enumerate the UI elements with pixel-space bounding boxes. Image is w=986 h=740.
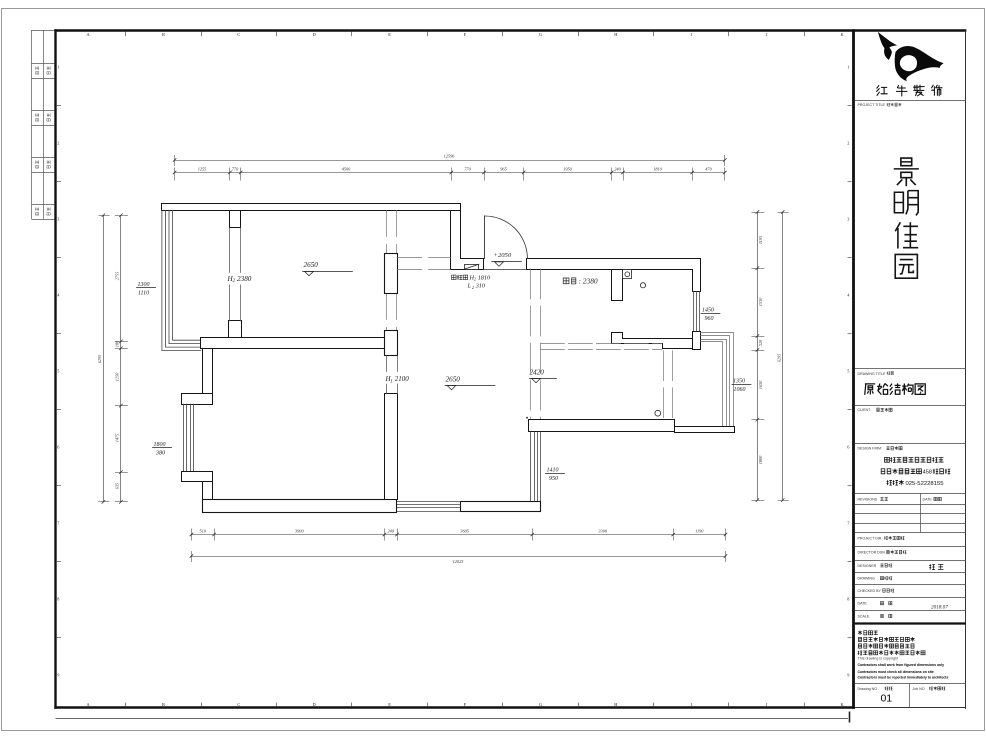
- svg-text:8: 8: [57, 597, 59, 602]
- svg-text:1195: 1195: [758, 235, 763, 244]
- svg-text:G: G: [539, 32, 542, 37]
- svg-text:1410: 1410: [547, 467, 559, 474]
- svg-text:6295: 6295: [97, 354, 102, 363]
- svg-text:6295: 6295: [776, 353, 781, 362]
- svg-text:240: 240: [387, 529, 394, 534]
- svg-text:770: 770: [464, 167, 471, 172]
- svg-text:H: H: [614, 32, 617, 37]
- svg-text:D: D: [313, 702, 316, 707]
- svg-text:3900: 3900: [295, 529, 304, 534]
- svg-text:CLIENT: CLIENT: [858, 408, 872, 412]
- svg-text:8: 8: [847, 597, 849, 602]
- svg-text:Contractors shall work from fi: Contractors shall work from figured dime…: [858, 663, 945, 667]
- svg-text:B: B: [162, 32, 165, 37]
- svg-text:2018.07: 2018.07: [931, 605, 948, 611]
- svg-text:DATE: DATE: [923, 497, 933, 501]
- svg-text:1950: 1950: [563, 167, 572, 172]
- svg-text:1250: 1250: [115, 372, 120, 381]
- svg-text:5: 5: [847, 369, 849, 374]
- svg-text:1060: 1060: [734, 387, 746, 393]
- svg-text:B: B: [162, 702, 165, 707]
- svg-text:1110: 1110: [138, 290, 149, 296]
- svg-text:510: 510: [199, 529, 206, 534]
- svg-text:470: 470: [705, 167, 712, 172]
- svg-text:Drawing NO: Drawing NO: [858, 687, 878, 691]
- svg-text:D: D: [313, 32, 316, 37]
- svg-text:C: C: [237, 32, 240, 37]
- svg-text:960: 960: [705, 316, 714, 322]
- svg-text:1190: 1190: [695, 529, 704, 534]
- svg-text:1650: 1650: [758, 380, 763, 389]
- svg-text:180: 180: [115, 340, 120, 347]
- svg-text:2100: 2100: [393, 375, 409, 383]
- svg-text:965: 965: [500, 167, 507, 172]
- svg-text:2420: 2420: [530, 369, 545, 377]
- svg-text:3: 3: [57, 217, 59, 222]
- svg-text:DESIGN FIRM: DESIGN FIRM: [858, 447, 882, 451]
- svg-text:3: 3: [847, 217, 849, 222]
- svg-text:DATE: DATE: [858, 602, 868, 606]
- svg-text:1810: 1810: [476, 274, 491, 281]
- svg-text:1: 1: [847, 65, 849, 70]
- svg-text:This drawing is copyright: This drawing is copyright: [858, 657, 899, 661]
- svg-text:2650: 2650: [446, 375, 461, 383]
- svg-text:L: L: [467, 283, 472, 290]
- svg-text:CHECKED BY: CHECKED BY: [858, 589, 882, 593]
- svg-text:+2050: +2050: [494, 252, 512, 259]
- svg-text:E: E: [388, 702, 391, 707]
- svg-text:9: 9: [57, 673, 59, 678]
- svg-text:REVISIONS: REVISIONS: [858, 497, 878, 501]
- svg-text:1475: 1475: [115, 433, 120, 442]
- svg-text:2650: 2650: [304, 261, 319, 269]
- svg-text:1: 1: [57, 65, 59, 70]
- svg-text:2755: 2755: [115, 271, 120, 280]
- svg-text:025-52228155: 025-52228155: [906, 481, 945, 487]
- svg-text:1255: 1255: [198, 167, 207, 172]
- svg-text:2: 2: [847, 141, 849, 146]
- svg-text:635: 635: [115, 482, 120, 489]
- svg-text:5: 5: [57, 369, 59, 374]
- svg-text:12025: 12025: [453, 559, 465, 564]
- svg-text:01: 01: [880, 693, 892, 705]
- svg-text:E: E: [388, 32, 391, 37]
- svg-text:DIRECTOR DSN: DIRECTOR DSN: [858, 551, 886, 555]
- svg-text:SCALE: SCALE: [858, 614, 870, 618]
- svg-text:2: 2: [57, 141, 59, 146]
- svg-text:PROJECT DIR: PROJECT DIR: [858, 536, 882, 540]
- svg-text:2380: 2380: [235, 275, 252, 283]
- svg-text:1800: 1800: [154, 442, 166, 448]
- svg-text:320: 320: [758, 339, 763, 346]
- svg-text:9: 9: [847, 673, 849, 678]
- svg-text:12596: 12596: [444, 154, 456, 159]
- svg-text:1800: 1800: [758, 455, 763, 464]
- svg-text:C: C: [237, 702, 240, 707]
- svg-text:Job NO: Job NO: [913, 687, 925, 691]
- svg-text:458: 458: [923, 469, 932, 475]
- svg-text:380: 380: [155, 450, 165, 456]
- svg-text:3300: 3300: [598, 529, 607, 534]
- svg-text:Contractors must check all dim: Contractors must check all dimensions on…: [858, 670, 934, 674]
- svg-text:1450: 1450: [702, 307, 714, 314]
- svg-text:H: H: [614, 702, 617, 707]
- svg-text:DRAWING TITLE: DRAWING TITLE: [858, 372, 887, 376]
- svg-text:DRAWING: DRAWING: [858, 577, 875, 581]
- svg-text:1530: 1530: [758, 297, 763, 306]
- svg-text:950: 950: [549, 476, 558, 482]
- svg-text:1300: 1300: [138, 282, 150, 288]
- svg-text:: 2380: : 2380: [579, 277, 598, 286]
- svg-text:1810: 1810: [653, 167, 662, 172]
- svg-text:DESIGNER: DESIGNER: [858, 564, 877, 568]
- svg-text:Contractors must be reported i: Contractors must be reported immediately…: [858, 676, 949, 680]
- svg-text:1350: 1350: [733, 379, 745, 385]
- svg-text:3605: 3605: [460, 529, 469, 534]
- svg-text:240: 240: [614, 167, 621, 172]
- svg-text:310: 310: [474, 283, 486, 290]
- svg-text:PROJECT TITLE: PROJECT TITLE: [858, 103, 886, 107]
- svg-text:4500: 4500: [342, 167, 351, 172]
- svg-text:770: 770: [232, 167, 239, 172]
- svg-text:G: G: [539, 702, 542, 707]
